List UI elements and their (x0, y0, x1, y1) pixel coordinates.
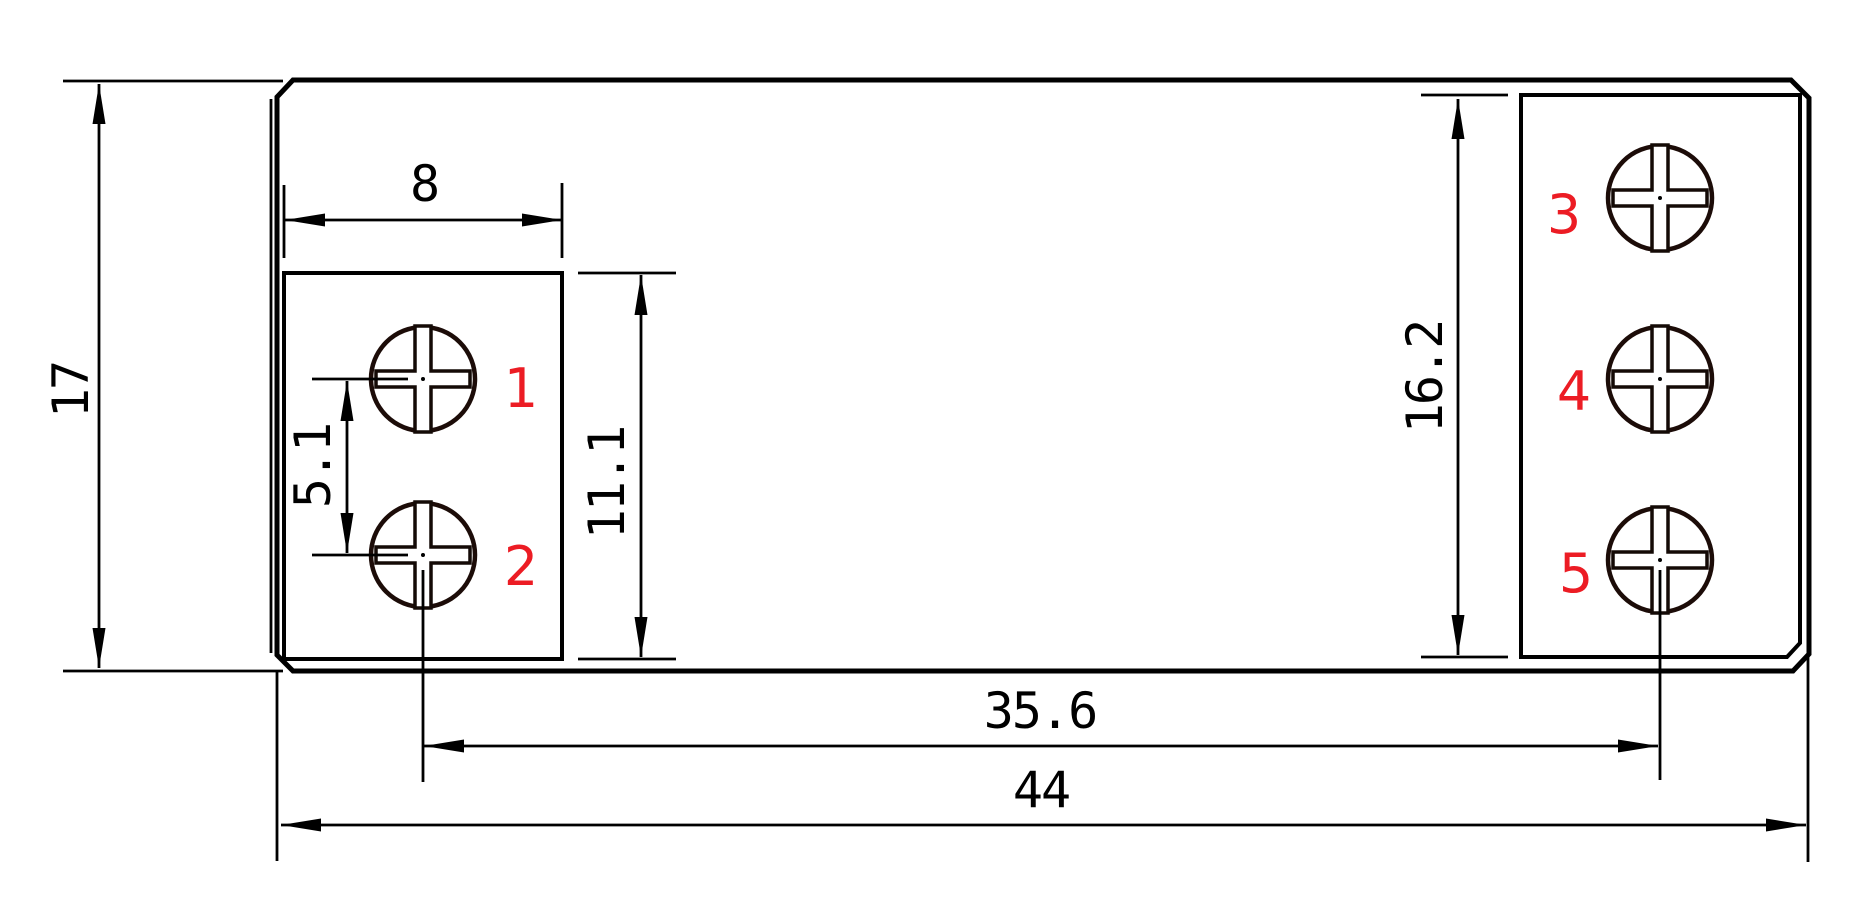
terminal-label-5: 5 (1559, 542, 1593, 605)
arrowhead-right (1618, 740, 1658, 753)
arrowhead-right (522, 214, 562, 227)
dim-body-height-text: 17 (42, 362, 100, 418)
technical-drawing-canvas: 1 2 3 4 5 17 8 (0, 0, 1866, 901)
terminal-label-2: 2 (504, 535, 538, 598)
dimension-right-block-height: 16.2 (1396, 95, 1508, 657)
arrowhead-left (285, 214, 325, 227)
terminal-label-4: 4 (1557, 360, 1591, 423)
arrowhead-down (635, 617, 648, 657)
dim-block-width-text: 8 (410, 155, 438, 213)
dim-left-block-height-text: 11.1 (578, 427, 636, 539)
dimension-screw-span: 35.6 (424, 682, 1658, 753)
screw-center-lines (423, 570, 1660, 782)
relay-footprint-drawing: 1 2 3 4 5 17 8 (0, 0, 1866, 901)
arrowhead-down (93, 628, 106, 668)
arrowhead-down (1452, 615, 1465, 655)
arrowhead-left (281, 819, 321, 832)
dimension-left-block-height: 11.1 (578, 273, 676, 659)
terminal-label-1: 1 (504, 357, 538, 420)
dim-screw-pitch-text: 5.1 (284, 424, 342, 508)
arrowhead-up (93, 84, 106, 124)
dimension-body-height: 17 (42, 81, 283, 671)
arrowhead-down (341, 513, 354, 553)
screw-3-icon (1608, 145, 1712, 251)
arrowhead-up (1452, 99, 1465, 139)
arrowhead-left (424, 740, 464, 753)
arrowhead-up (341, 381, 354, 421)
terminal-label-3: 3 (1547, 183, 1581, 246)
dim-body-width-text: 44 (1013, 761, 1069, 819)
dimension-block-width: 8 (284, 155, 562, 258)
dim-screw-span-text: 35.6 (984, 682, 1096, 740)
dim-right-block-height-text: 16.2 (1396, 321, 1454, 433)
screw-4-icon (1608, 326, 1712, 432)
arrowhead-up (635, 275, 648, 315)
arrowhead-right (1766, 819, 1806, 832)
